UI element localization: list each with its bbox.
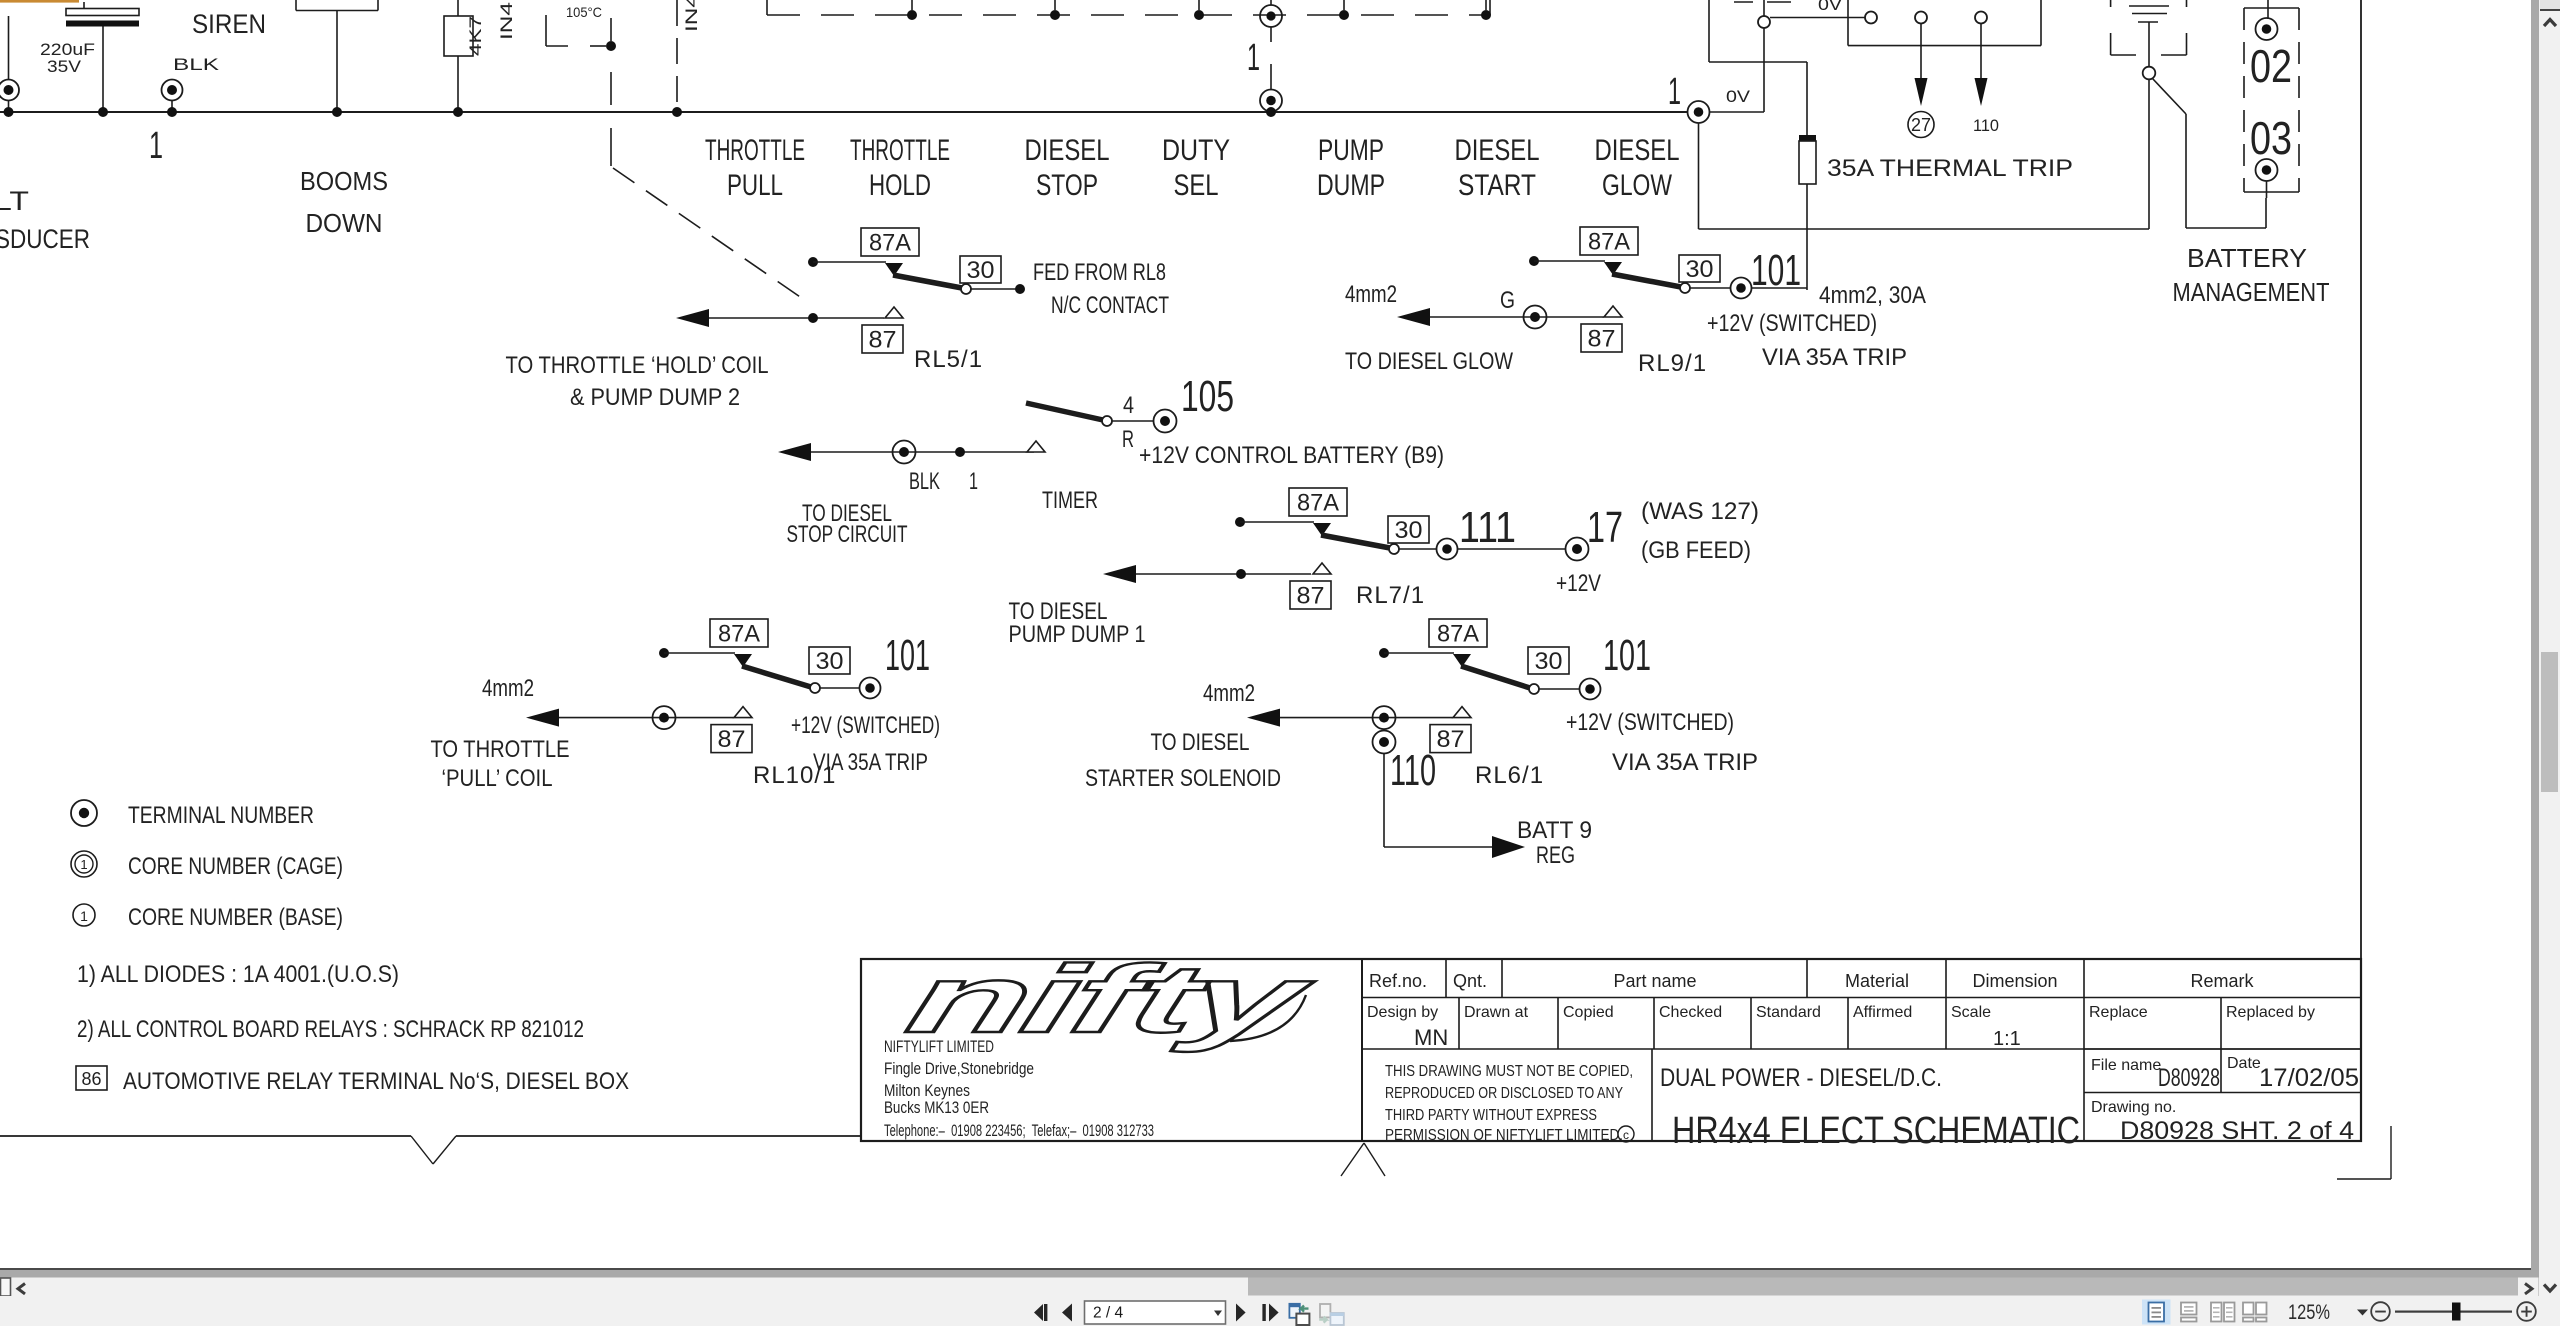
svg-text:03: 03 [2250, 112, 2292, 164]
svg-text:START: START [1458, 169, 1536, 202]
svg-text:Telephone:– 01908 223456; Te: Telephone:– 01908 223456; Telefax;– 0190… [884, 1121, 1154, 1140]
svg-text:RL9/1: RL9/1 [1638, 350, 1707, 377]
svg-text:(GB FEED): (GB FEED) [1641, 537, 1751, 564]
svg-text:N/C CONTACT: N/C CONTACT [1051, 292, 1169, 319]
svg-text:Scale: Scale [1951, 1004, 1991, 1021]
svg-text:MANAGEMENT: MANAGEMENT [2173, 277, 2330, 307]
svg-text:HOLD: HOLD [869, 169, 931, 202]
svg-text:DUTY: DUTY [1162, 134, 1230, 167]
svg-text:RL5/1: RL5/1 [914, 346, 983, 373]
svg-text:111: 111 [1459, 503, 1516, 552]
svg-text:Ref.no.: Ref.no. [1369, 971, 1427, 991]
svg-text:30: 30 [967, 257, 995, 284]
svg-text:DUAL POWER - DIESEL/D.C.: DUAL POWER - DIESEL/D.C. [1660, 1064, 1942, 1092]
svg-text:Replaced by: Replaced by [2226, 1004, 2315, 1021]
svg-text:LT: LT [0, 186, 29, 216]
svg-text:2) ALL CONTROL BOARD RELAYS :: 2) ALL CONTROL BOARD RELAYS : SCHRACK RP… [77, 1016, 584, 1043]
svg-text:RL6/1: RL6/1 [1475, 762, 1544, 789]
svg-text:1: 1 [969, 468, 978, 495]
svg-text:File name: File name [2091, 1057, 2161, 1074]
svg-text:1: 1 [80, 908, 88, 924]
svg-text:STOP: STOP [1036, 169, 1098, 202]
svg-text:30: 30 [1535, 648, 1563, 675]
svg-text:87: 87 [1437, 726, 1465, 753]
svg-text:0V: 0V [1726, 87, 1751, 106]
svg-text:Affirmed: Affirmed [1853, 1004, 1912, 1021]
svg-text:110: 110 [1390, 746, 1436, 795]
svg-text:125%: 125% [2288, 1301, 2330, 1324]
svg-text:SEL: SEL [1174, 169, 1219, 202]
svg-text:1: 1 [80, 857, 87, 872]
svg-text:VIA 35A TRIP: VIA 35A TRIP [1762, 344, 1907, 371]
svg-text:+12V (SWITCHED): +12V (SWITCHED) [1566, 709, 1734, 736]
svg-text:DIESEL: DIESEL [1595, 134, 1680, 167]
svg-text:Design by: Design by [1367, 1004, 1438, 1021]
svg-text:87A: 87A [1588, 229, 1630, 256]
svg-text:Bucks MK13 0ER: Bucks MK13 0ER [884, 1098, 989, 1117]
svg-text:AUTOMOTIVE RELAY TERMINAL No‘S: AUTOMOTIVE RELAY TERMINAL No‘S, DIESEL B… [123, 1068, 629, 1095]
svg-text:1:1: 1:1 [1993, 1028, 2021, 1050]
svg-text:R: R [1122, 426, 1134, 453]
svg-text:27: 27 [1911, 115, 1931, 135]
svg-text:+12V (SWITCHED): +12V (SWITCHED) [791, 712, 940, 739]
svg-text:IN4: IN4 [682, 0, 701, 32]
svg-text:101: 101 [885, 631, 930, 680]
svg-text:STARTER SOLENOID: STARTER SOLENOID [1085, 765, 1281, 792]
svg-text:PERMISSION OF NIFTYLIFT LIMITE: PERMISSION OF NIFTYLIFT LIMITED. [1385, 1127, 1623, 1144]
svg-text:REPRODUCED OR DISCLOSED TO ANY: REPRODUCED OR DISCLOSED TO ANY [1385, 1085, 1623, 1102]
svg-text:87: 87 [1297, 583, 1325, 610]
svg-text:110: 110 [1973, 116, 1999, 135]
svg-text:87: 87 [1588, 326, 1616, 353]
svg-text:THROTTLE: THROTTLE [850, 134, 950, 167]
svg-text:Remark: Remark [2190, 971, 2254, 991]
svg-text:2 / 4: 2 / 4 [1093, 1305, 1124, 1322]
svg-text:BLK: BLK [909, 468, 940, 495]
svg-text:IN4: IN4 [497, 2, 516, 40]
svg-text:PUMP: PUMP [1318, 134, 1384, 167]
svg-text:PULL: PULL [727, 169, 783, 202]
svg-text:87A: 87A [869, 230, 911, 257]
svg-text:105: 105 [1181, 372, 1234, 421]
svg-text:(WAS 127): (WAS 127) [1641, 498, 1759, 525]
svg-text:DUMP: DUMP [1317, 169, 1385, 202]
svg-text:35V: 35V [47, 57, 82, 76]
svg-text:1: 1 [1668, 71, 1681, 113]
svg-text:THIRD PARTY WITHOUT EXPRESS: THIRD PARTY WITHOUT EXPRESS [1385, 1107, 1597, 1124]
svg-text:DIESEL: DIESEL [1025, 134, 1110, 167]
svg-text:87: 87 [718, 726, 746, 753]
svg-text:02: 02 [2250, 40, 2292, 92]
svg-text:86: 86 [82, 1069, 102, 1089]
svg-text:TO THROTTLE ‘HOLD’ COIL: TO THROTTLE ‘HOLD’ COIL [506, 352, 769, 379]
svg-text:Material: Material [1845, 971, 1909, 991]
svg-text:DIESEL: DIESEL [1455, 134, 1540, 167]
svg-text:101: 101 [1603, 631, 1651, 680]
svg-text:1) ALL DIODES : 1A 4001.(U.O.S: 1) ALL DIODES : 1A 4001.(U.O.S) [77, 961, 399, 988]
svg-text:35A THERMAL TRIP: 35A THERMAL TRIP [1827, 155, 2073, 182]
svg-text:RL7/1: RL7/1 [1356, 582, 1425, 609]
svg-text:G: G [1500, 287, 1515, 314]
svg-text:Drawing no.: Drawing no. [2091, 1099, 2176, 1116]
svg-text:Dimension: Dimension [1972, 971, 2057, 991]
svg-text:STOP CIRCUIT: STOP CIRCUIT [787, 521, 908, 548]
svg-text:Drawn at: Drawn at [1464, 1004, 1529, 1021]
svg-text:87A: 87A [1437, 621, 1479, 648]
svg-text:FED FROM RL8: FED FROM RL8 [1033, 259, 1166, 286]
svg-text:105°C: 105°C [566, 4, 602, 20]
svg-text:Checked: Checked [1659, 1004, 1722, 1021]
svg-text:BOOMS: BOOMS [300, 166, 388, 196]
svg-text:1: 1 [1247, 37, 1260, 79]
svg-text:CORE NUMBER (CAGE): CORE NUMBER (CAGE) [128, 853, 343, 880]
svg-text:PUMP DUMP 1: PUMP DUMP 1 [1009, 621, 1146, 648]
svg-text:BLK: BLK [173, 55, 220, 74]
svg-text:BATTERY: BATTERY [2187, 243, 2307, 273]
svg-text:c: c [1623, 1128, 1629, 1142]
svg-text:17: 17 [1587, 503, 1623, 552]
svg-text:D80928: D80928 [2158, 1064, 2220, 1092]
svg-text:BATT 9: BATT 9 [1517, 817, 1592, 844]
svg-text:TO DIESEL GLOW: TO DIESEL GLOW [1345, 348, 1513, 375]
svg-text:Date: Date [2227, 1055, 2261, 1072]
svg-text:D80928 SHT. 2 of 4: D80928 SHT. 2 of 4 [2120, 1117, 2354, 1145]
svg-text:HR4x4 ELECT SCHEMATIC: HR4x4 ELECT SCHEMATIC [1672, 1110, 2080, 1152]
svg-text:87A: 87A [718, 621, 760, 648]
svg-text:30: 30 [1686, 256, 1714, 283]
svg-text:SDUCER: SDUCER [0, 224, 90, 254]
svg-text:4K7: 4K7 [466, 16, 485, 56]
svg-text:TO DIESEL: TO DIESEL [1151, 729, 1250, 756]
svg-text:THIS DRAWING MUST NOT BE COPIE: THIS DRAWING MUST NOT BE COPIED, [1385, 1063, 1633, 1080]
svg-text:+12V CONTROL BATTERY (B9): +12V CONTROL BATTERY (B9) [1139, 442, 1444, 469]
svg-text:+12V: +12V [1556, 570, 1601, 597]
svg-text:TERMINAL NUMBER: TERMINAL NUMBER [128, 802, 314, 829]
svg-text:THROTTLE: THROTTLE [705, 134, 805, 167]
svg-text:VIA 35A TRIP: VIA 35A TRIP [813, 749, 928, 776]
svg-text:SIREN: SIREN [192, 9, 266, 39]
svg-text:& PUMP DUMP 2: & PUMP DUMP 2 [570, 384, 740, 411]
svg-text:4mm2, 30A: 4mm2, 30A [1819, 282, 1926, 309]
svg-text:TIMER: TIMER [1042, 487, 1098, 514]
svg-text:+12V (SWITCHED): +12V (SWITCHED) [1707, 310, 1877, 337]
svg-text:GLOW: GLOW [1602, 169, 1673, 202]
svg-text:4mm2: 4mm2 [482, 675, 534, 702]
svg-text:4: 4 [1123, 392, 1134, 419]
svg-text:Standard: Standard [1756, 1004, 1821, 1021]
svg-text:17/02/05: 17/02/05 [2259, 1064, 2359, 1092]
svg-text:Fingle Drive,Stonebridge: Fingle Drive,Stonebridge [884, 1059, 1034, 1078]
svg-text:30: 30 [1395, 517, 1423, 544]
svg-text:REG: REG [1536, 842, 1575, 869]
svg-text:Replace: Replace [2089, 1004, 2148, 1021]
svg-text:‘PULL’ COIL: ‘PULL’ COIL [442, 765, 553, 792]
svg-text:30: 30 [816, 648, 844, 675]
svg-text:4mm2: 4mm2 [1345, 281, 1397, 308]
svg-text:NIFTYLIFT LIMITED: NIFTYLIFT LIMITED [884, 1037, 994, 1056]
svg-text:Qnt.: Qnt. [1453, 971, 1487, 991]
svg-text:0V: 0V [1818, 0, 1843, 14]
svg-text:TO THROTTLE: TO THROTTLE [431, 736, 570, 763]
svg-text:1: 1 [149, 125, 163, 167]
svg-text:4mm2: 4mm2 [1203, 680, 1255, 707]
svg-text:VIA 35A TRIP: VIA 35A TRIP [1612, 749, 1758, 776]
svg-text:Copied: Copied [1563, 1004, 1614, 1021]
svg-text:87A: 87A [1297, 490, 1339, 517]
svg-text:MN: MN [1414, 1025, 1448, 1050]
svg-text:DOWN: DOWN [306, 208, 383, 238]
svg-text:CORE NUMBER (BASE): CORE NUMBER (BASE) [128, 904, 343, 931]
svg-text:Part name: Part name [1613, 971, 1696, 991]
svg-text:87: 87 [869, 327, 897, 354]
